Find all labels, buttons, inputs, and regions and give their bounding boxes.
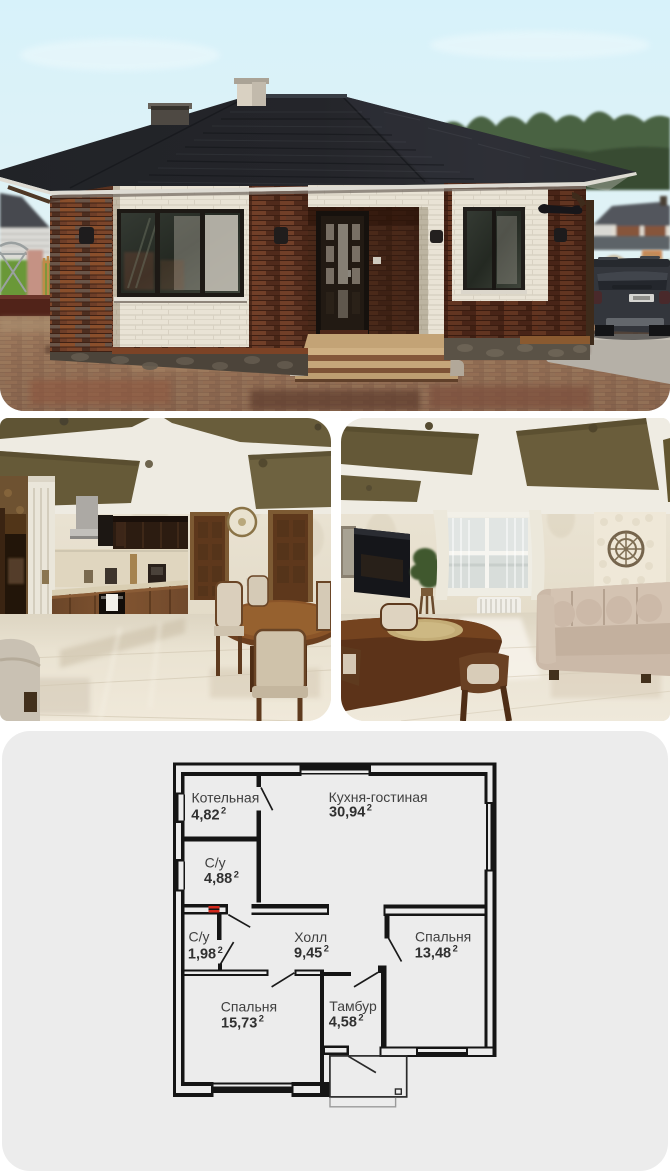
svg-text:1,982: 1,982 [188,945,223,963]
svg-text:Спальня: Спальня [221,999,277,1015]
svg-text:4,582: 4,582 [329,1013,364,1031]
svg-text:13,482: 13,482 [415,944,458,962]
svg-text:Спальня: Спальня [415,929,471,945]
svg-text:С/у: С/у [189,929,210,945]
svg-text:4,822: 4,822 [191,806,226,824]
svg-text:Кухня-гостиная: Кухня-гостиная [329,789,428,805]
svg-text:9,452: 9,452 [294,944,329,962]
svg-text:4,882: 4,882 [204,869,239,887]
svg-text:Котельная: Котельная [192,789,260,805]
svg-text:Тамбур: Тамбур [329,998,377,1014]
svg-text:С/у: С/у [205,854,226,870]
svg-text:30,942: 30,942 [329,803,372,821]
svg-text:Холл: Холл [294,929,327,945]
svg-text:15,732: 15,732 [221,1014,264,1032]
